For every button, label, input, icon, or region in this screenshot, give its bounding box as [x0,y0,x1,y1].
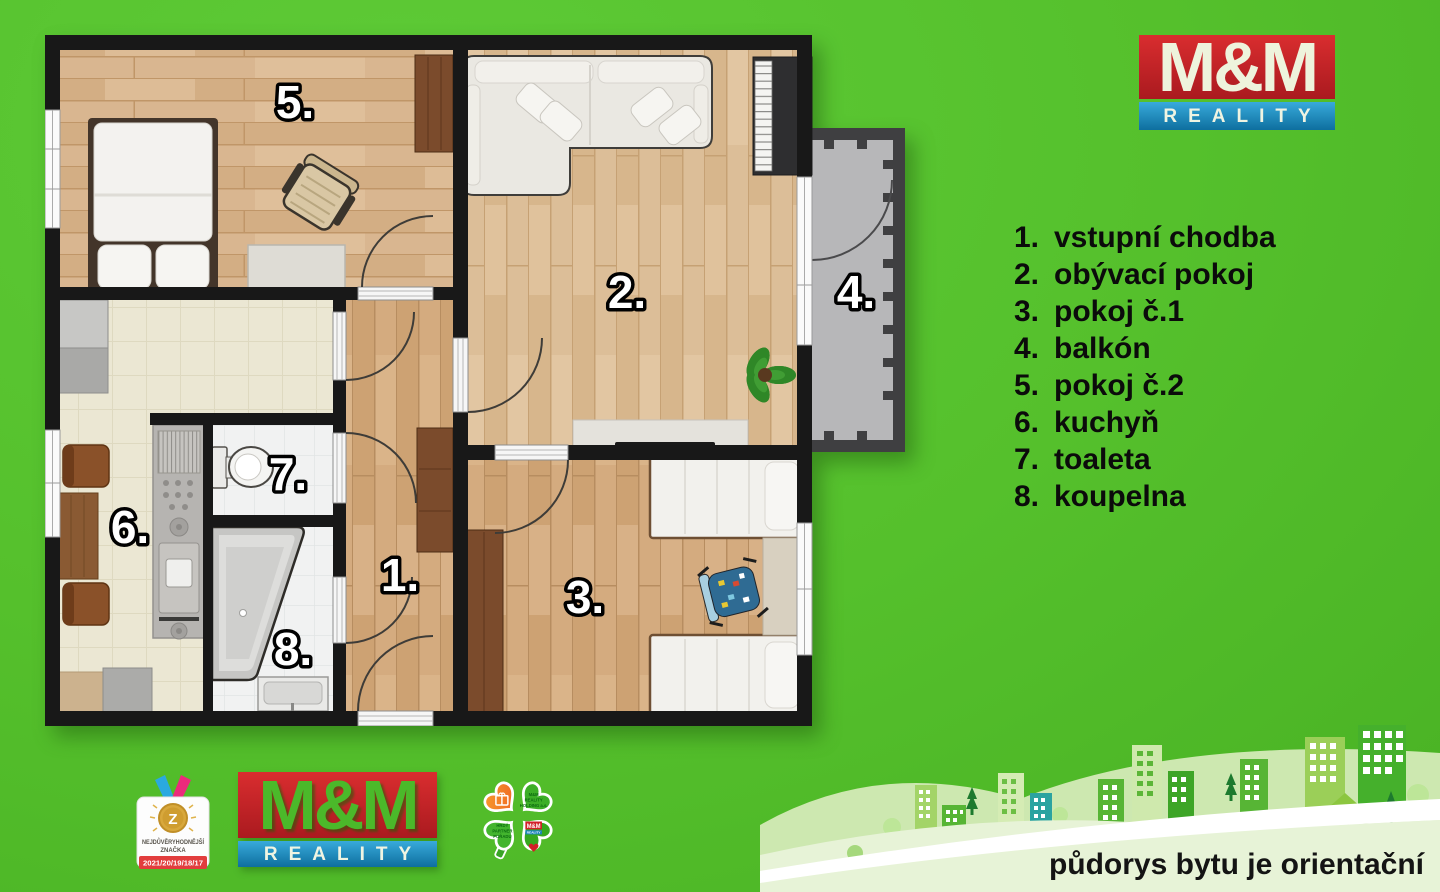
trusted-brand-badge: Z NEJDŮVĚRYHODNĚJŠÍ ZNAČKA 2021/20/19/18… [133,772,213,872]
logo-blue-bar: REALITY [238,841,437,867]
fridge-icon [58,300,108,393]
logo-mm-text: M&M [1158,32,1316,102]
window-icon [797,523,812,655]
legend-item: 6.kuchyň [1014,404,1276,441]
room-label-bedroom2: 5. [276,76,314,128]
svg-text:REALITY: REALITY [525,797,543,802]
kitchen-counter-icon [153,425,205,639]
svg-text:M&M: M&M [527,823,541,830]
window-icon [797,285,812,345]
medal-letter: Z [168,811,177,828]
svg-text:HRDÝ: HRDÝ [496,823,508,828]
balcony-door-icon [797,177,812,285]
trust-badge-line1: NEJDŮVĚRYHODNĚJŠÍ [142,838,204,846]
toilet-fixture-icon [212,447,273,488]
single-bed-icon [650,455,805,538]
clover-badge: M&M REALITY HOLDING a.s. HRDÝ PARTNER PO… [472,768,564,864]
washer-icon [103,668,152,716]
room-label-balcony: 4. [837,266,875,318]
room-label-toilet: 7. [269,448,307,500]
svg-text:HOLDING a.s.: HOLDING a.s. [520,803,548,808]
legend-item: 7.toaleta [1014,441,1276,478]
double-bed-icon [88,118,218,292]
logo-reality-text: REALITY [1152,107,1321,126]
room-label-living: 2. [608,266,646,318]
window-icon [45,430,60,537]
logo-reality-text: REALITY [253,845,422,864]
legend-item: 2.obývací pokoj [1014,256,1276,293]
hall-wardrobe-icon [417,428,453,552]
room-label-bathroom: 8. [274,623,312,675]
page: 1. 2. 3. 4. 5. 6. 7. 8. M&M REALITY 1.vs… [0,0,1440,892]
mm-reality-logo-top: M&M REALITY [1139,35,1335,130]
legend-item: 4.balkón [1014,330,1276,367]
room-label-kitchen: 6. [111,501,149,553]
room-label-bedroom1: 3. [566,571,604,623]
wardrobe-icon [415,55,453,152]
logo-blue-bar: REALITY [1139,102,1335,130]
washbasin-icon [258,677,328,711]
mm-reality-logo-bottom: M&M REALITY [238,772,437,867]
logo-red-box: M&M [238,772,437,838]
svg-text:POŘADU: POŘADU [493,834,511,839]
logo-red-box: M&M [1139,35,1335,99]
legend-item: 5.pokoj č.2 [1014,367,1276,404]
svg-text:REALITY: REALITY [527,831,542,835]
legend-item: 1.vstupní chodba [1014,219,1276,256]
trust-badge-line2: ZNAČKA [160,847,186,854]
room-label-hall: 1. [381,549,419,601]
floor-plan: 1. 2. 3. 4. 5. 6. 7. 8. [45,35,905,726]
trust-badge-years: 2021/20/19/18/17 [143,859,203,868]
legend-item: 3.pokoj č.1 [1014,293,1276,330]
disclaimer-text: půdorys bytu je orientační [1049,848,1424,882]
table-icon [58,493,98,579]
cabinet-icon [58,672,103,716]
logo-mm-text: M&M [258,770,416,840]
legend-item: 8.koupelna [1014,478,1276,515]
desk-icon [248,245,345,288]
svg-text:M&M: M&M [529,792,540,797]
room-legend: 1.vstupní chodba 2.obývací pokoj 3.pokoj… [1014,219,1276,515]
svg-text:PARTNER: PARTNER [492,829,512,834]
window-icon [45,110,60,228]
